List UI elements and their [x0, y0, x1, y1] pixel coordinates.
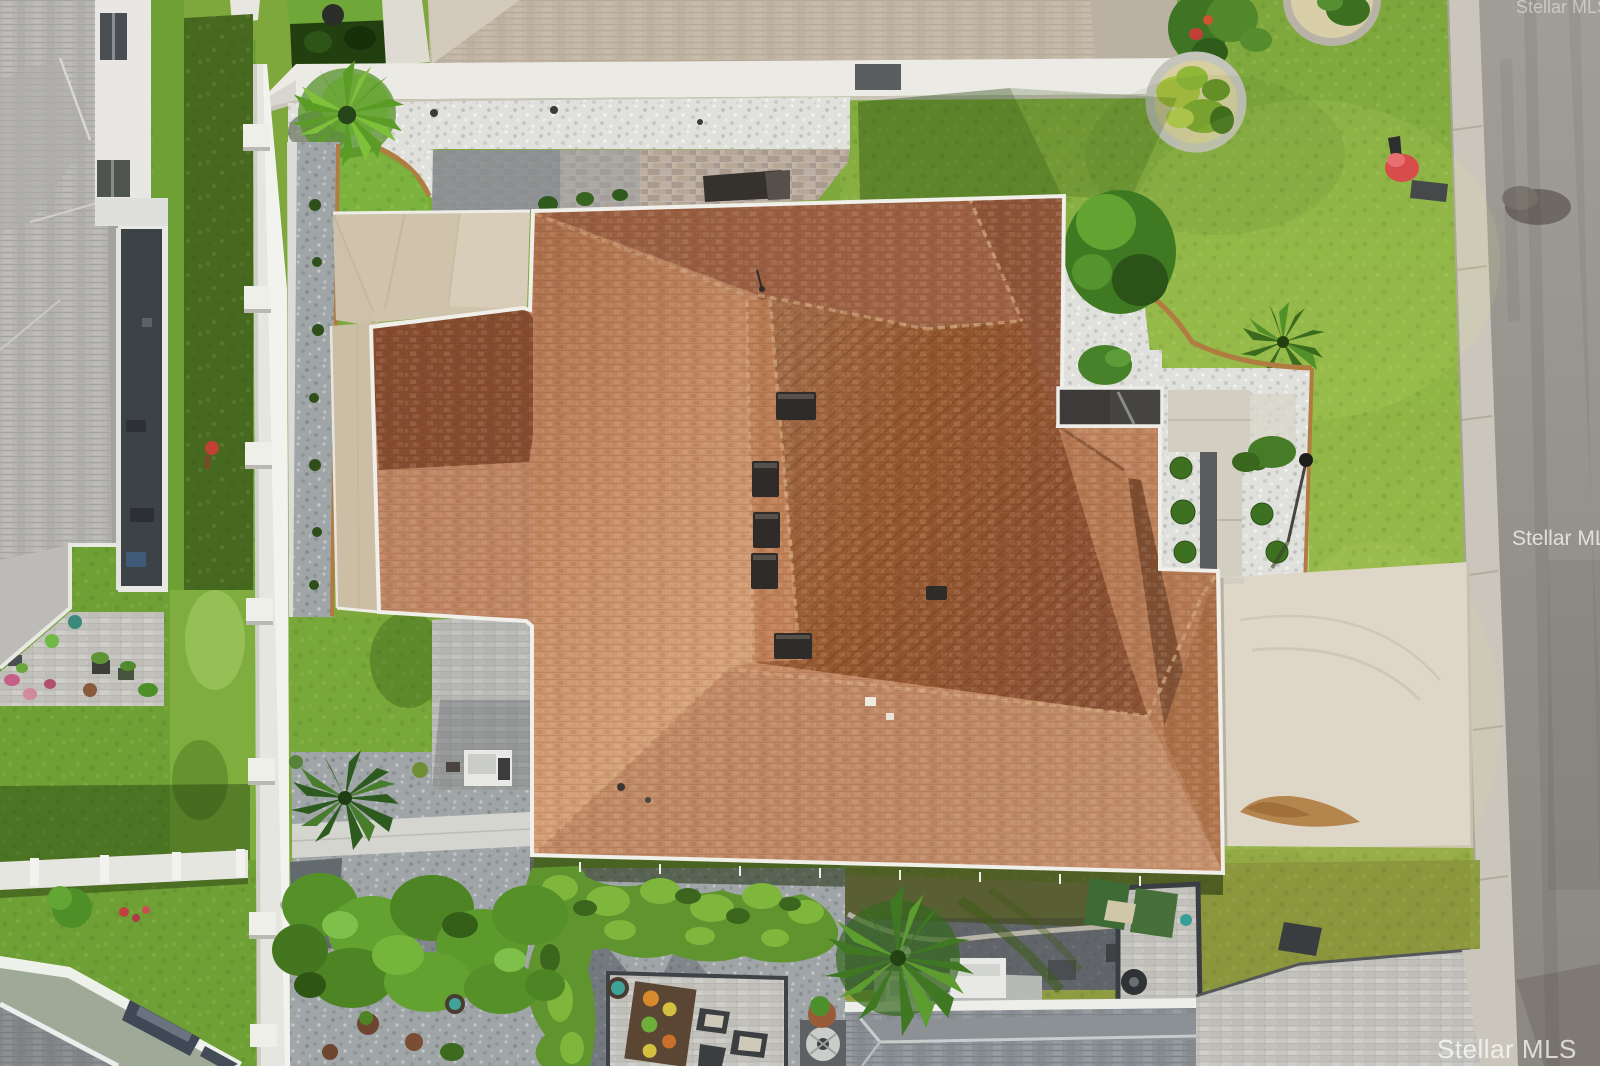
svg-text:Stellar MLS: Stellar MLS: [1437, 1034, 1577, 1064]
svg-text:Stellar MLS: Stellar MLS: [1512, 527, 1600, 550]
svg-text:Stellar MLS: Stellar MLS: [1516, 0, 1600, 17]
